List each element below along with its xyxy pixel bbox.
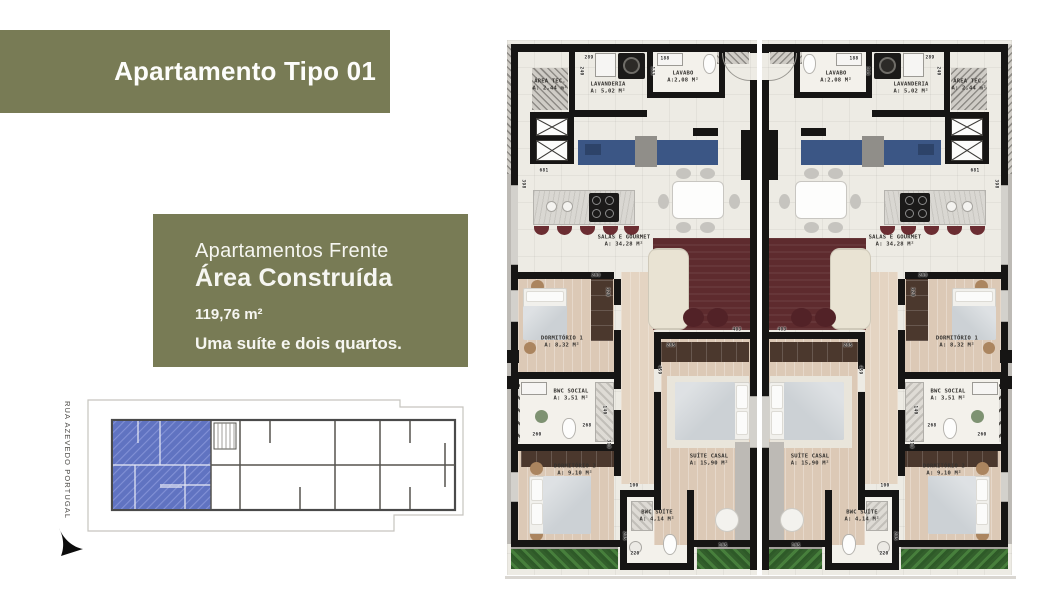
- bar-stool: [924, 226, 939, 235]
- wall-tooth: [1000, 350, 1012, 363]
- info-title: Área Construída: [195, 264, 448, 293]
- north-arrow-icon: [56, 527, 86, 559]
- wall: [614, 410, 621, 444]
- burner: [605, 196, 614, 205]
- info-description: Uma suíte e dois quartos.: [195, 334, 448, 354]
- tech-area-box: [951, 68, 987, 110]
- lavabo-toilet: [703, 54, 716, 74]
- sofa: [830, 248, 871, 330]
- pouf: [683, 308, 704, 327]
- laundry-sink: [595, 53, 616, 77]
- privacy-panel: [735, 442, 750, 542]
- island-sink-bowl: [546, 201, 557, 212]
- wall: [511, 540, 621, 547]
- bar-stool: [580, 226, 595, 235]
- window: [1001, 290, 1008, 322]
- wall: [898, 444, 1001, 451]
- wall-tooth: [1000, 376, 1012, 389]
- bar-stool: [880, 226, 895, 235]
- planter: [511, 547, 618, 569]
- wall: [687, 490, 694, 570]
- wall: [898, 410, 905, 444]
- wall: [892, 490, 899, 570]
- shower: [595, 382, 614, 442]
- duvet: [784, 382, 844, 440]
- pouf: [707, 308, 728, 327]
- wall: [762, 332, 865, 339]
- wall: [614, 451, 621, 476]
- floor-plan-right: ÁREA TEC.A: 2,44 m²LAVANDERIAA: 5,02 M²L…: [762, 40, 1012, 577]
- plant-pot: [971, 410, 984, 423]
- burner: [605, 209, 614, 218]
- window: [511, 290, 518, 322]
- wall: [898, 372, 1001, 379]
- bar-stool: [624, 226, 639, 235]
- toilet: [842, 534, 856, 555]
- wall: [762, 130, 778, 180]
- wardrobe: [591, 279, 613, 341]
- info-subtitle: Apartamentos Frente: [195, 240, 448, 263]
- island-sink-bowl: [562, 201, 573, 212]
- blanket: [523, 306, 567, 340]
- vanity: [521, 382, 547, 395]
- suite-floor-strip: [855, 510, 865, 545]
- pillow: [531, 503, 543, 525]
- dining-chair: [676, 222, 691, 233]
- round-chair: [715, 508, 739, 532]
- wall: [825, 563, 899, 570]
- wall: [898, 540, 1008, 547]
- wall: [653, 92, 725, 98]
- entry-door-arc: [722, 53, 750, 81]
- washing-machine: [618, 53, 645, 79]
- wall: [571, 110, 647, 117]
- wall: [518, 372, 621, 379]
- wall: [741, 130, 757, 180]
- bedside-table: [976, 462, 989, 475]
- dining-chair: [779, 194, 790, 209]
- wall: [694, 540, 757, 547]
- pillow: [976, 503, 988, 525]
- wall: [614, 330, 621, 389]
- island-sink-bowl: [946, 201, 957, 212]
- round-sink: [629, 541, 642, 554]
- toilet: [663, 534, 677, 555]
- dining-chair: [804, 168, 819, 179]
- pillow: [955, 291, 993, 302]
- plant-pot: [535, 410, 548, 423]
- elevator-shaft: [536, 118, 568, 136]
- lavabo-sink: [657, 53, 683, 66]
- wall: [898, 451, 905, 476]
- dining-table: [672, 181, 724, 219]
- blanket: [952, 306, 996, 340]
- bar-stool: [603, 226, 618, 235]
- wall: [620, 490, 627, 570]
- wall: [620, 563, 694, 570]
- cooktop: [900, 193, 930, 222]
- title-banner: Apartamento Tipo 01: [0, 30, 390, 113]
- wall: [794, 92, 866, 98]
- bedside-table: [530, 462, 543, 475]
- window: [750, 396, 757, 448]
- window: [511, 472, 518, 502]
- wall: [518, 444, 621, 451]
- pillow: [526, 291, 564, 302]
- suite-wardrobe: [661, 342, 749, 362]
- burner: [905, 196, 914, 205]
- wall-tooth: [507, 350, 519, 363]
- bar-stool: [970, 226, 985, 235]
- plan-art: [762, 40, 1012, 575]
- tech-area-box: [532, 68, 568, 110]
- wall: [801, 128, 826, 136]
- window: [1001, 472, 1008, 502]
- page: { "banner": { "title": "Apartamento Tipo…: [0, 0, 1057, 599]
- dining-chair: [700, 222, 715, 233]
- wall: [654, 392, 661, 510]
- wall: [825, 490, 832, 570]
- wall: [627, 490, 655, 497]
- pillow: [531, 479, 543, 501]
- info-card: Apartamentos Frente Área Construída 119,…: [153, 214, 468, 367]
- wall: [654, 332, 757, 339]
- shower: [866, 501, 888, 531]
- burner: [918, 209, 927, 218]
- dining-chair: [729, 194, 740, 209]
- round-sink: [877, 541, 890, 554]
- pillow: [771, 411, 783, 435]
- counter-sink: [585, 144, 601, 155]
- lavabo-sink: [836, 53, 862, 66]
- wardrobe: [906, 279, 928, 341]
- wall: [762, 540, 825, 547]
- dining-chair: [828, 168, 843, 179]
- burner: [918, 196, 927, 205]
- pouf: [791, 308, 812, 327]
- elevator-shaft: [536, 140, 568, 161]
- floor-plan-left: ÁREA TEC.A: 2,44 m²LAVANDERIAA: 5,02 M²L…: [507, 40, 757, 577]
- wall: [858, 339, 865, 369]
- dining-chair: [658, 194, 669, 209]
- washer-drum: [623, 57, 640, 74]
- wall: [858, 392, 865, 510]
- dining-chair: [828, 222, 843, 233]
- wall: [905, 272, 1001, 279]
- laundry-sink: [903, 53, 924, 77]
- pouf: [815, 308, 836, 327]
- wall: [864, 490, 892, 497]
- wall: [569, 52, 575, 112]
- burner: [592, 209, 601, 218]
- bedside-table: [524, 342, 536, 354]
- round-chair: [780, 508, 804, 532]
- bar-stool: [534, 226, 549, 235]
- pillow: [736, 411, 748, 435]
- wall: [944, 52, 950, 112]
- bedside-table: [983, 342, 995, 354]
- dining-chair: [676, 168, 691, 179]
- washer-drum: [879, 57, 896, 74]
- elevator-shaft: [951, 140, 983, 161]
- site-key-plan: [50, 393, 480, 568]
- cooktop: [589, 193, 619, 222]
- toilet: [943, 418, 957, 439]
- pillow: [976, 479, 988, 501]
- page-title: Apartamento Tipo 01: [114, 56, 376, 87]
- shower: [631, 501, 653, 531]
- wall: [872, 110, 948, 117]
- window: [511, 185, 518, 265]
- wall: [693, 128, 718, 136]
- wall: [511, 44, 757, 52]
- dining-table: [795, 181, 847, 219]
- window: [1001, 185, 1008, 265]
- info-area-value: 119,76 m²: [195, 306, 448, 323]
- duvet: [543, 476, 591, 534]
- vanity: [972, 382, 998, 395]
- bar-stool: [947, 226, 962, 235]
- lavabo-toilet: [803, 54, 816, 74]
- duvet: [675, 382, 735, 440]
- pillow: [736, 385, 748, 409]
- duvet: [928, 476, 976, 534]
- wall: [750, 44, 757, 53]
- plan-art: [507, 40, 757, 575]
- exterior-hatch-left: [1008, 44, 1012, 174]
- wall: [614, 279, 621, 305]
- shower: [905, 382, 924, 442]
- entry-door-arc: [769, 53, 797, 81]
- suite-wardrobe: [770, 342, 858, 362]
- dining-chair: [804, 222, 819, 233]
- bar-stool: [557, 226, 572, 235]
- ground-line: [505, 576, 1016, 579]
- wall: [762, 44, 1008, 52]
- pillow: [771, 385, 783, 409]
- stove: [862, 136, 884, 167]
- burner: [592, 196, 601, 205]
- planter: [769, 547, 822, 569]
- window: [762, 396, 769, 448]
- washing-machine: [874, 53, 901, 79]
- bar-stool: [901, 226, 916, 235]
- dining-chair: [850, 194, 861, 209]
- elevator-shaft: [951, 118, 983, 136]
- stove: [635, 136, 657, 167]
- wall: [898, 279, 905, 305]
- wall: [866, 52, 872, 98]
- planter: [697, 547, 750, 569]
- island-sink-bowl: [962, 201, 973, 212]
- toilet: [562, 418, 576, 439]
- wall: [654, 339, 661, 369]
- burner: [905, 209, 914, 218]
- planter: [901, 547, 1008, 569]
- wall: [762, 44, 769, 53]
- wall: [518, 272, 614, 279]
- dining-chair: [700, 168, 715, 179]
- wall: [898, 330, 905, 389]
- counter-sink: [918, 144, 934, 155]
